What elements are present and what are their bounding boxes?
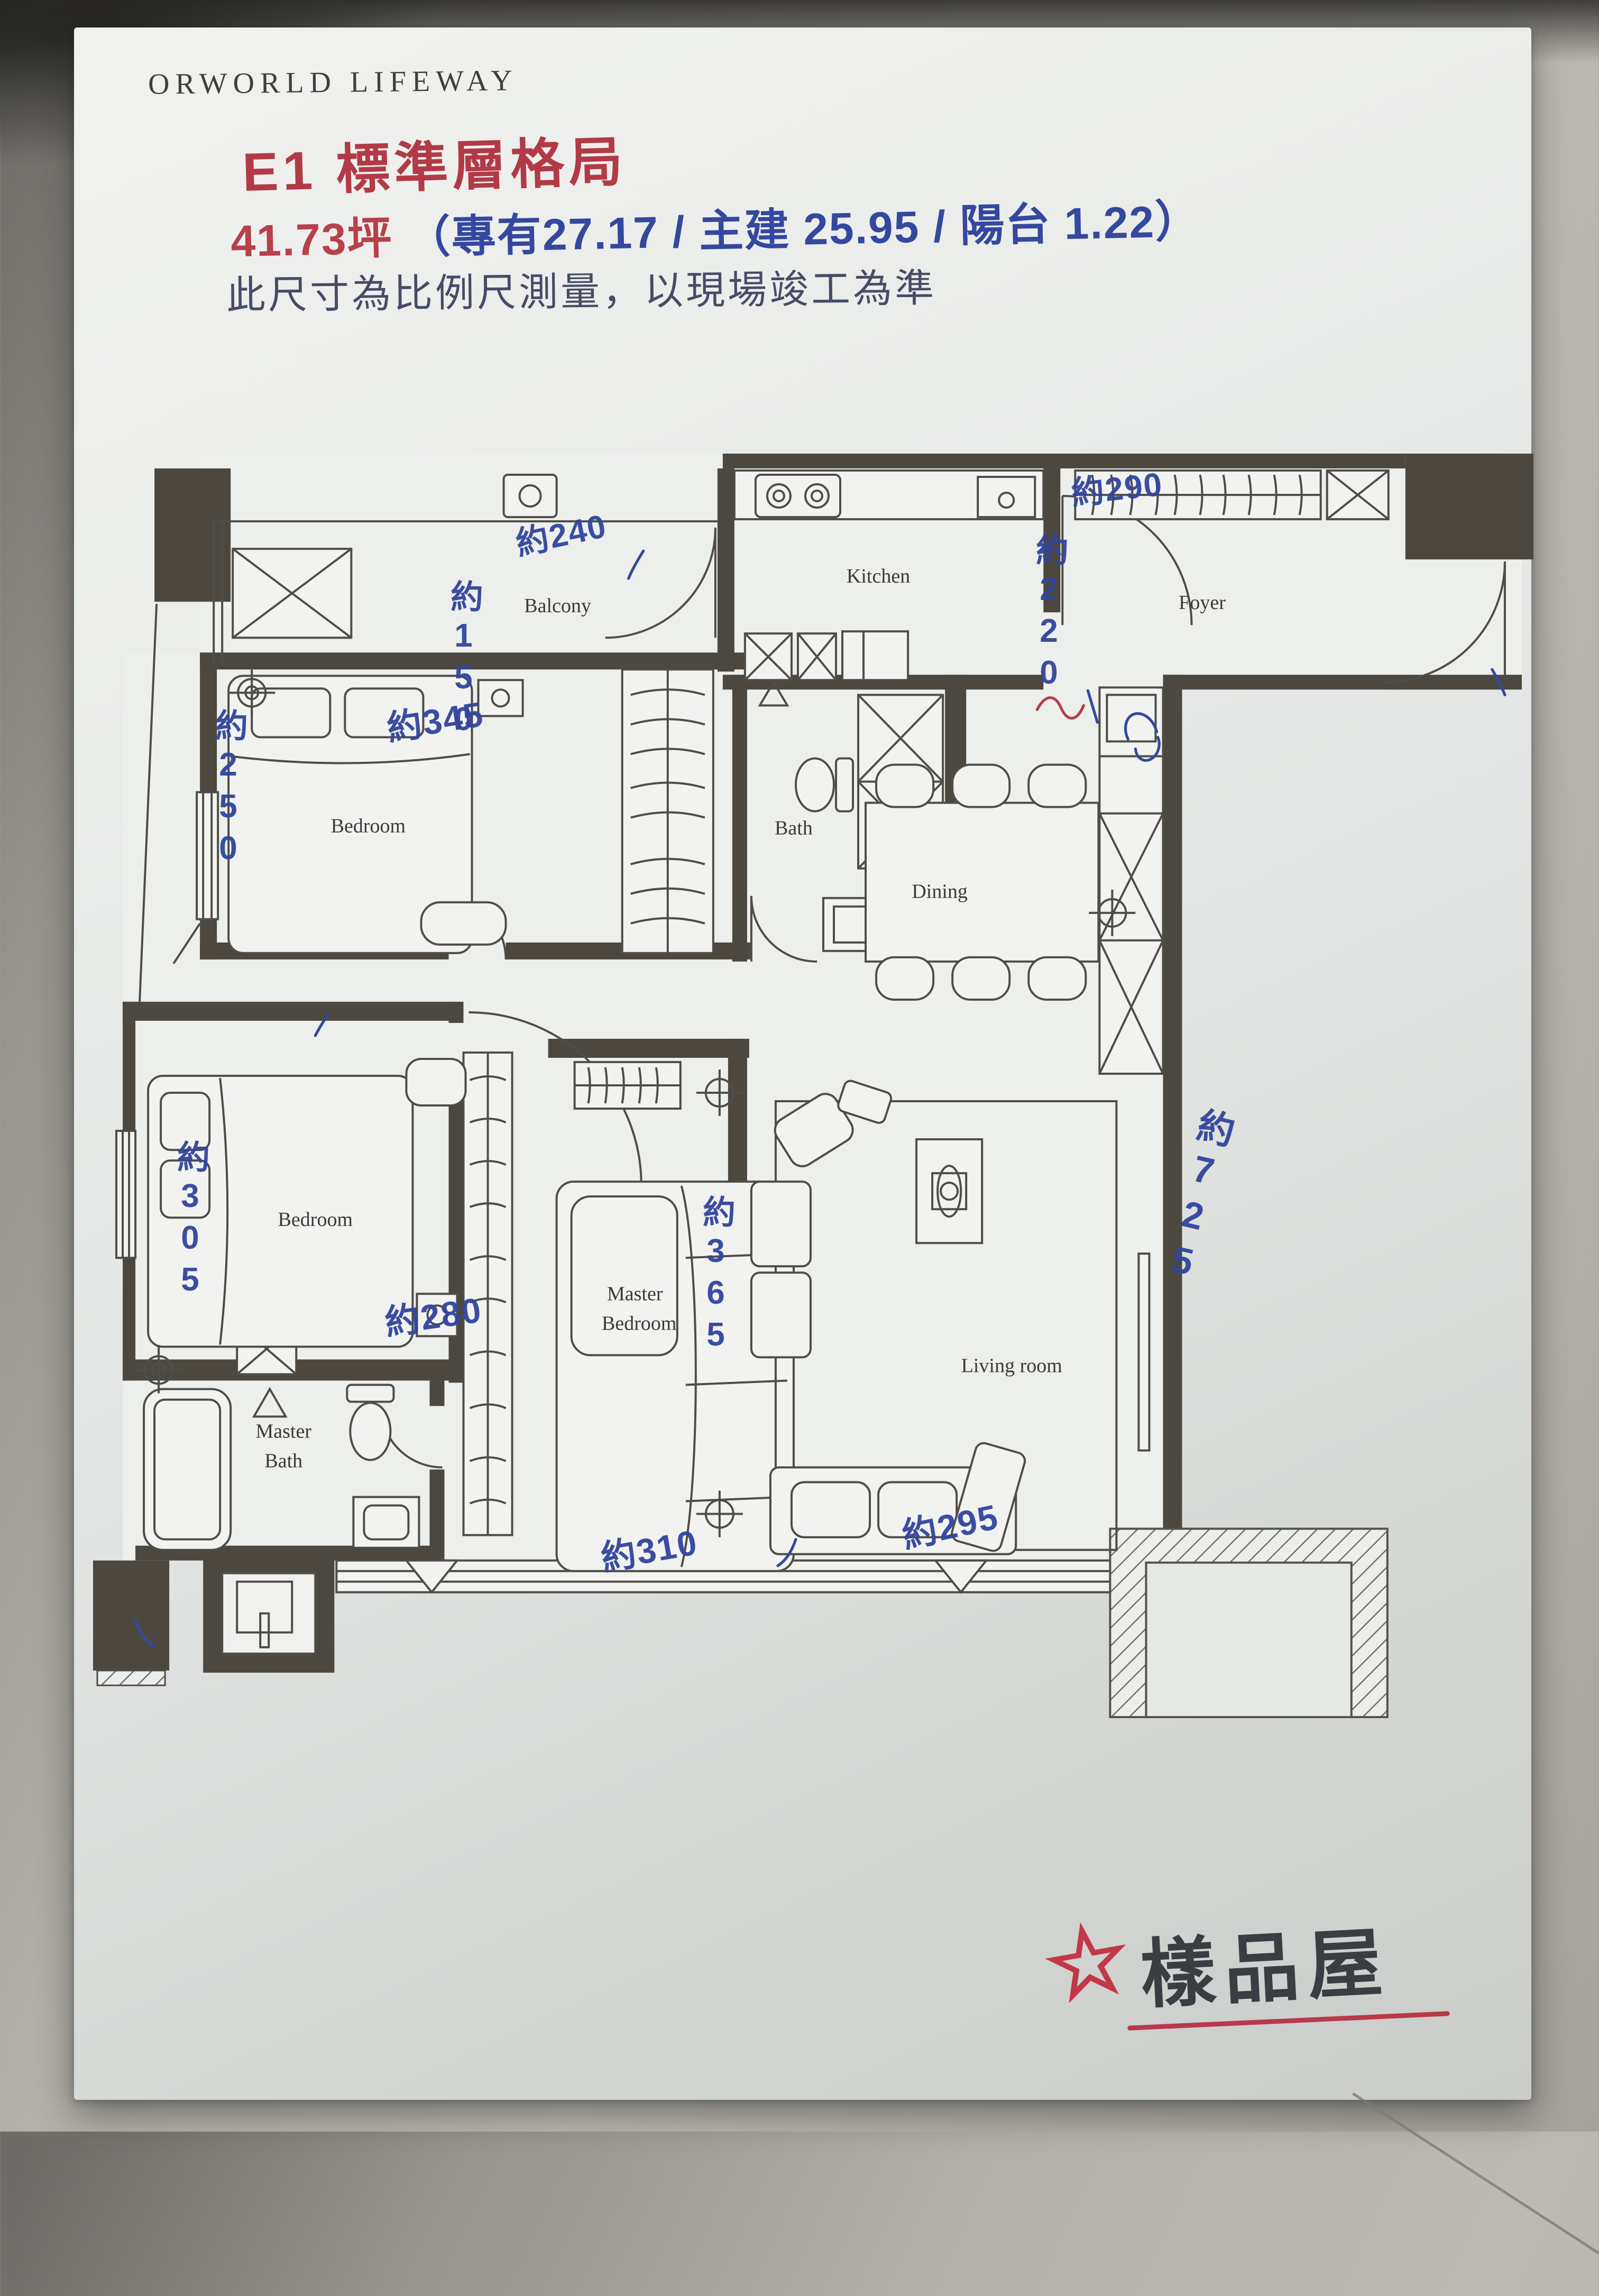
floor-plan: Balcony Kitchen Foyer Bedroom Bath Dinin… xyxy=(93,454,1533,1719)
toilet-master xyxy=(347,1385,393,1460)
room-label-kitchen: Kitchen xyxy=(847,565,910,587)
star-icon: ☆ xyxy=(1036,1901,1139,2025)
vanity-master xyxy=(353,1497,419,1548)
room-label-master-bedroom-1: Master xyxy=(607,1283,663,1305)
handwritten-title: E1 標準層格局 xyxy=(241,118,628,207)
dim-220: 約220 xyxy=(1025,533,1072,686)
wardrobe-bedroom1 xyxy=(622,669,713,953)
brand-logotype: ORWORLD LIFEWAY xyxy=(148,63,518,101)
toilet-bath xyxy=(796,758,853,811)
room-label-foyer: Foyer xyxy=(1179,592,1226,614)
dim-250: 約250 xyxy=(204,708,252,883)
dining-table xyxy=(866,764,1098,999)
room-label-bath: Bath xyxy=(775,817,813,840)
room-label-balcony: Balcony xyxy=(524,595,591,617)
dresser-master xyxy=(575,1062,681,1109)
dim-305: 約305 xyxy=(166,1140,214,1335)
floor-plan-drawing: Balcony Kitchen Foyer Bedroom Bath Dinin… xyxy=(93,454,1533,1719)
room-label-bedroom1: Bedroom xyxy=(331,815,406,837)
handwritten-note: 此尺寸為比例尺測量，以現場竣工為準 xyxy=(226,256,936,320)
room-label-master-bath-2: Bath xyxy=(264,1450,302,1472)
fridge-icon xyxy=(842,631,908,680)
room-label-master-bath-1: Master xyxy=(255,1421,311,1443)
coffee-table xyxy=(916,1139,982,1243)
dim-290: 約290 xyxy=(1069,457,1165,514)
room-label-master-bedroom-2: Bedroom xyxy=(602,1312,676,1334)
dim-365: 約365 xyxy=(692,1195,739,1369)
room-label-living-room: Living room xyxy=(961,1354,1062,1377)
paper-sheet: ORWORLD LIFEWAY E1 標準層格局 41.73坪 （專有27.17… xyxy=(74,27,1531,2100)
room-label-dining: Dining xyxy=(912,881,968,903)
bathtub-icon xyxy=(144,1389,231,1550)
area-breakdown: （專有27.17 / 主建 25.95 / 陽台 1.22） xyxy=(406,196,1201,262)
area-total: 41.73坪 xyxy=(230,213,393,266)
sink-icon xyxy=(978,477,1035,517)
stove-icon xyxy=(756,475,840,517)
stamp-sample-house: 樣品屋 xyxy=(1137,1901,1393,2023)
desk-edge-line xyxy=(1352,2092,1599,2296)
room-label-bedroom2: Bedroom xyxy=(278,1209,353,1231)
